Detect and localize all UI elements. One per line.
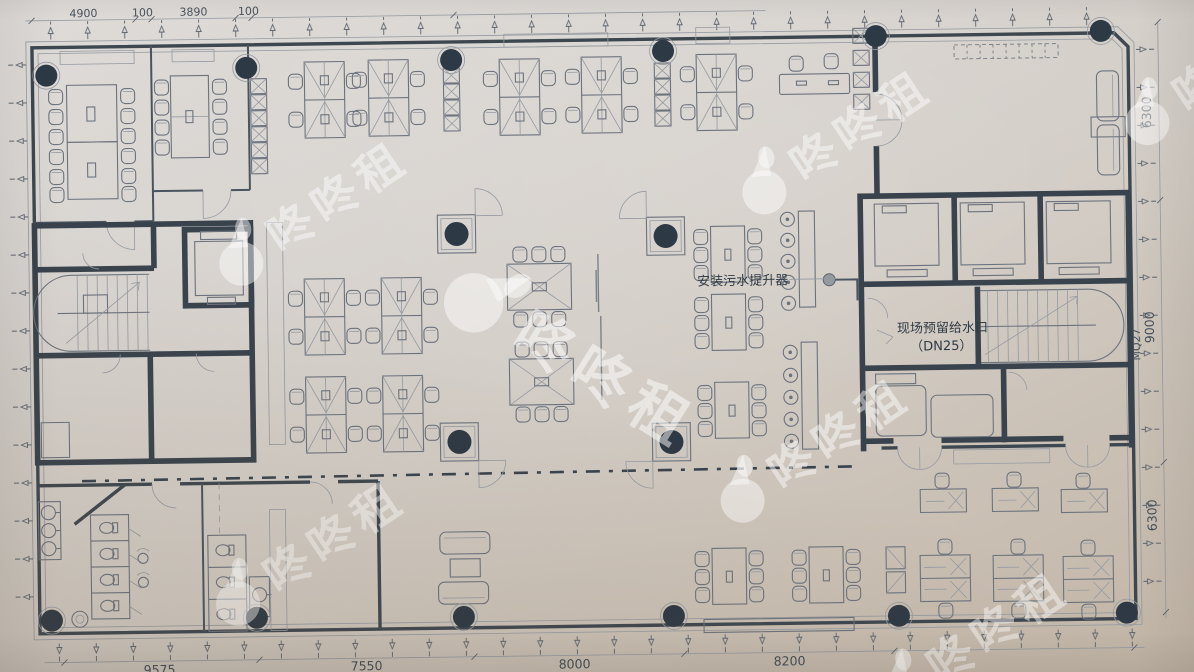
workstation-cluster <box>288 61 361 138</box>
open-office-top <box>250 27 754 174</box>
urinals <box>137 549 150 588</box>
dim-top-3: 3890 <box>179 5 207 18</box>
column <box>1087 17 1114 44</box>
annotation-water-inlet-line1: 现场预留给水口 <box>897 321 988 337</box>
svg-text:咚咚租: 咚咚租 <box>758 367 920 500</box>
dim-right-2: 9000 <box>1142 311 1157 343</box>
column <box>38 607 65 634</box>
svg-text:咚咚租: 咚咚租 <box>502 298 708 463</box>
column <box>1113 599 1140 626</box>
column <box>885 602 912 629</box>
dim-top-2: 100 <box>132 6 153 19</box>
dim-top-1: 4900 <box>69 7 97 20</box>
svg-text:咚咚租: 咚咚租 <box>254 470 416 603</box>
svg-text:咚咚租: 咚咚租 <box>257 130 419 263</box>
floor-plan-photo: 4900 100 3890 100 9575 7550 8000 8200 63… <box>0 0 1194 672</box>
svg-text:咚咚租: 咚咚租 <box>917 561 1079 672</box>
watermark: 咚咚租 <box>701 357 920 534</box>
annotation-water-inlet-line2: （DN25） <box>910 339 972 355</box>
column <box>437 46 464 73</box>
svg-text:咚咚租: 咚咚租 <box>780 59 942 192</box>
center-workstations <box>288 277 439 453</box>
boxed-column <box>437 215 476 254</box>
column <box>33 62 60 89</box>
watermarks: 咚咚租 咚咚租 咚咚租 咚咚租 咚咚租 咚咚租 咚咚租 <box>189 0 1194 672</box>
boxed-column <box>440 423 479 462</box>
dim-top-4: 100 <box>238 5 259 18</box>
meeting-room-small <box>151 45 250 219</box>
floor-plan-drawing: 4900 100 3890 100 9575 7550 8000 8200 63… <box>0 0 1194 672</box>
workstation-cluster <box>680 54 753 131</box>
svg-text:咚咚租: 咚咚租 <box>1163 0 1194 123</box>
dim-right-3: 6300 <box>1144 499 1159 531</box>
watermark: 咚咚租 <box>723 48 942 225</box>
column <box>649 37 676 64</box>
column <box>862 22 889 49</box>
wall-decor-dashed <box>954 44 1058 59</box>
printer-stand <box>886 547 906 593</box>
dim-bottom-2: 7550 <box>351 658 383 672</box>
workstation-cluster <box>483 59 556 136</box>
bottom-meeting-tables <box>695 546 861 632</box>
sofa <box>1097 125 1120 175</box>
staircase-left <box>33 274 150 352</box>
workstation-cluster <box>352 59 425 136</box>
dim-bottom-1: 9575 <box>144 662 176 672</box>
column <box>660 602 687 629</box>
staircase-right <box>977 289 1124 363</box>
boxed-column <box>646 217 685 256</box>
watermark: 咚咚租 <box>200 120 419 297</box>
dim-bottom-4: 8200 <box>774 653 806 668</box>
toilet-stalls <box>90 514 141 619</box>
elevator-bank <box>874 201 1111 277</box>
lounge-bottom <box>438 532 491 605</box>
dim-bottom-3: 8000 <box>559 656 591 671</box>
watermark: 咚咚租 <box>433 240 718 463</box>
workstation-cluster <box>565 56 638 133</box>
column <box>450 603 477 630</box>
floor-drain <box>823 274 835 286</box>
annotation-sewage-lifter: 安装污水提升器 <box>697 272 788 289</box>
sofa <box>1096 71 1119 121</box>
column <box>233 54 260 81</box>
